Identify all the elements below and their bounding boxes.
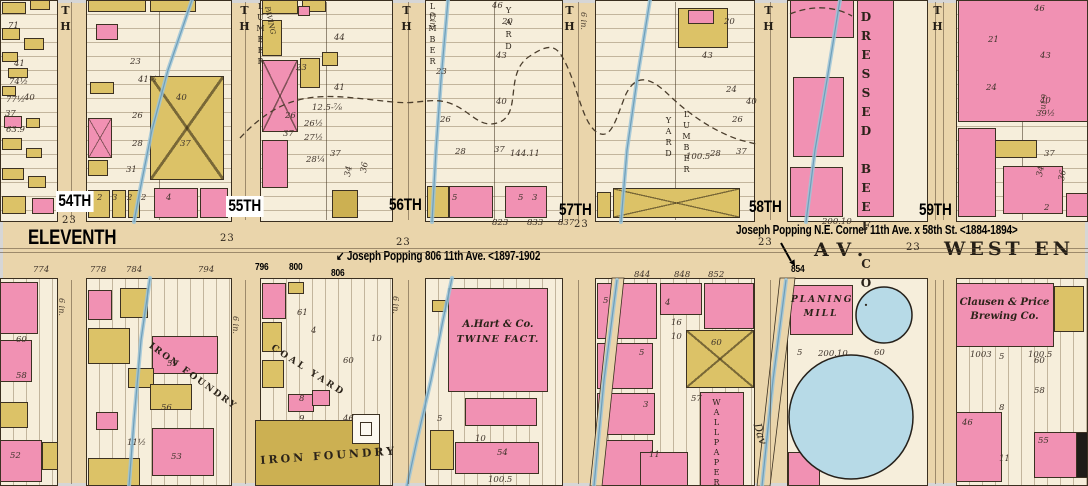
street-center-line <box>0 252 1088 253</box>
house-number-annotation: 854 <box>791 264 805 275</box>
building-footprint <box>298 6 310 16</box>
lot-number: 37 <box>5 110 16 119</box>
street-width-marker: 23 <box>62 216 77 226</box>
lot-number: 844 <box>634 271 650 280</box>
building-footprint <box>322 52 338 66</box>
lot-number: 71 <box>8 22 19 31</box>
stream-line <box>762 280 786 486</box>
street-name-top-fragment: TH <box>564 4 575 36</box>
lot-number: 58 <box>1034 387 1045 396</box>
lot-number: 37 <box>736 148 747 157</box>
building-footprint <box>1054 286 1084 332</box>
business-label: WALLPAPER <box>712 398 720 486</box>
lot-number: 36 <box>360 161 370 173</box>
building-footprint <box>88 0 146 12</box>
lot-number: 56 <box>161 404 172 413</box>
lot-number: 8 <box>299 395 304 404</box>
lot-number: 37 <box>494 146 505 155</box>
lot-number: 3 <box>112 194 117 203</box>
lot-number: 37 <box>1044 150 1055 159</box>
lot-number: 11 <box>999 455 1010 464</box>
building-footprint <box>42 442 58 470</box>
street-name-top-fragment: TH <box>763 4 774 36</box>
business-label: DRESSED BEEF CO. <box>860 10 872 314</box>
building-footprint <box>360 422 372 436</box>
building-footprint <box>96 412 118 430</box>
lot-number: 60 <box>16 336 27 345</box>
building-footprint <box>597 192 611 218</box>
lot-number: 848 <box>674 271 690 280</box>
lot-number: 54 <box>497 449 508 458</box>
business-label: PLANING <box>791 296 851 305</box>
lot-number: 40 <box>24 94 35 103</box>
building-footprint <box>688 10 714 24</box>
business-label: Clausen & Price <box>952 298 1057 308</box>
building-footprint <box>790 167 843 217</box>
building-footprint <box>2 196 26 214</box>
business-label: YARD <box>664 116 672 160</box>
street-label: 56TH <box>389 196 422 214</box>
lot-number: 61 <box>297 309 308 318</box>
building-footprint <box>1003 166 1063 214</box>
lot-number: 5 <box>639 349 644 358</box>
building-footprint <box>2 138 22 150</box>
lot-number: 26½ <box>304 120 323 129</box>
lot-number: 2 <box>97 194 102 203</box>
street-width-marker: 23 <box>220 234 235 244</box>
street-name-top-fragment: TH <box>239 4 250 36</box>
street-name-top-fragment: TH <box>932 4 943 36</box>
street-width-marker: 23 <box>574 220 589 230</box>
street-label: 58TH <box>749 198 782 216</box>
building-footprint <box>262 60 298 132</box>
lot-number: 37 <box>180 140 191 149</box>
lot-number: 46 <box>1034 5 1045 14</box>
street-label: 59TH <box>919 201 952 219</box>
building-footprint <box>88 118 112 158</box>
lot-number: 778 <box>90 266 106 275</box>
lot-number: 4 <box>166 194 171 203</box>
lot-number: 37 <box>330 150 341 159</box>
house-number-annotation: 806 <box>331 268 345 279</box>
street-center-line <box>770 280 771 484</box>
business-label: TWINE FACT. <box>450 335 546 345</box>
lot-number: 36 <box>1058 169 1068 181</box>
stream-center-line <box>762 280 786 486</box>
building-footprint <box>700 392 744 486</box>
street-center-line <box>71 280 72 484</box>
building-footprint <box>88 290 112 320</box>
building-footprint <box>24 38 44 50</box>
lot-number: 12.5-⅞ <box>312 104 342 113</box>
building-footprint <box>88 458 140 486</box>
business-label: Brewing Co. <box>952 312 1057 322</box>
water-main-label: 6 in. <box>579 12 588 30</box>
lot-number: 16 <box>671 319 682 328</box>
building-footprint <box>427 186 449 218</box>
lot-number: 2 <box>127 194 132 203</box>
lot-number: 31 <box>126 166 137 175</box>
building-footprint <box>1066 193 1088 217</box>
business-label: YARD <box>504 6 512 54</box>
lot-number: 10 <box>475 435 486 444</box>
building-footprint <box>32 198 54 214</box>
building-footprint <box>28 176 46 188</box>
building-footprint <box>262 360 284 388</box>
lot-number: 5 <box>797 349 802 358</box>
lot-number: 3 <box>532 194 537 203</box>
lot-number: 28 <box>132 140 143 149</box>
lot-number: 794 <box>198 266 214 275</box>
annotation-popping-58th: Joseph Popping N.E. Corner 11th Ave. x 5… <box>736 224 1018 237</box>
building-footprint <box>200 188 228 218</box>
building-footprint <box>793 77 844 157</box>
building-footprint <box>505 186 547 218</box>
lot-number: 60 <box>711 339 722 348</box>
building-footprint <box>88 328 130 364</box>
building-footprint <box>788 452 820 486</box>
building-footprint <box>288 282 304 294</box>
lot-number: 46 <box>962 419 973 428</box>
street-label: 55TH <box>226 196 263 217</box>
business-label: LUMBER <box>682 110 690 176</box>
lot-number: 40 <box>176 94 187 103</box>
street-center-line <box>943 280 944 484</box>
lot-number: 5 <box>437 415 442 424</box>
lot-number: 60 <box>1034 357 1045 366</box>
building-footprint <box>430 430 454 470</box>
lot-number: 1003 <box>970 351 992 360</box>
street-width-marker: 23 <box>396 238 411 248</box>
street-name-top-fragment: TH <box>401 4 412 36</box>
lot-number: 823 <box>492 219 508 228</box>
business-label: A.Hart & Co. <box>450 320 546 330</box>
lot-number: 43 <box>702 52 713 61</box>
lot-number: 23 <box>296 64 307 73</box>
street-center-line <box>578 2 579 220</box>
lot-number: 41½ <box>138 76 157 85</box>
lot-number: 55 <box>1038 437 1049 446</box>
lot-number: 144.11 <box>510 150 540 159</box>
lot-number: 26 <box>440 116 451 125</box>
building-footprint <box>262 283 286 319</box>
building-footprint <box>640 452 688 486</box>
lot-number: 60 <box>343 357 354 366</box>
lot-number: 9 <box>299 415 304 424</box>
building-footprint <box>26 148 42 158</box>
building-footprint <box>2 168 24 180</box>
building-footprint <box>704 283 754 329</box>
lot-number: 44 <box>334 34 345 43</box>
lot-number: 74½ <box>9 78 28 87</box>
lot-number: 3 <box>643 401 648 410</box>
water-main-label: 6 in. <box>391 296 400 314</box>
lot-number: 4 <box>311 327 316 336</box>
building-footprint <box>154 188 198 218</box>
lot-number: 784 <box>126 266 142 275</box>
lot-number: 2 <box>1044 204 1049 213</box>
street-width-marker: 23 <box>906 243 921 253</box>
business-label: MILL <box>791 310 851 319</box>
lot-number: 837 <box>558 219 574 228</box>
house-number-annotation: 800 <box>289 262 303 273</box>
lot-number: 26 <box>285 112 296 121</box>
lot-number: 4 <box>665 299 670 308</box>
lot-number: 200.10 <box>822 218 852 227</box>
lot-number: 46 <box>492 2 503 11</box>
building-footprint <box>455 442 539 474</box>
lot-number: 5 <box>452 194 457 203</box>
building-footprint <box>150 76 224 180</box>
building-footprint <box>120 288 148 318</box>
building-footprint <box>312 390 330 406</box>
street-center-line <box>0 248 1088 249</box>
building-footprint <box>90 82 114 94</box>
lot-number: 28 <box>455 148 466 157</box>
lot-number: 28¼ <box>306 156 325 165</box>
building-footprint <box>958 128 996 217</box>
lot-number: 27½ <box>304 134 323 143</box>
lot-number: 852 <box>708 271 724 280</box>
street-center-line <box>935 280 936 484</box>
lot-number: 58 <box>16 372 27 381</box>
lot-number: 774 <box>33 266 49 275</box>
lot-number: 23 <box>130 58 141 67</box>
lot-number: 20 <box>724 18 735 27</box>
building-footprint <box>96 24 118 40</box>
lot-number: 40 <box>746 98 757 107</box>
building-footprint <box>26 118 40 128</box>
lot-number: 28 <box>710 150 721 159</box>
building-footprint <box>597 343 653 389</box>
eleventh-avenue-label: ELEVENTH <box>28 227 116 249</box>
lot-number: 37 <box>283 130 294 139</box>
street-label: 57TH <box>559 201 592 219</box>
building-footprint <box>1076 432 1088 478</box>
building-footprint <box>152 428 214 476</box>
business-label: LUMBER <box>428 2 436 68</box>
house-number-annotation: 796 <box>255 262 269 273</box>
building-footprint <box>790 0 854 38</box>
lot-number: 52 <box>10 452 21 461</box>
lot-number: 46 <box>343 415 354 424</box>
street-width-marker: 23 <box>758 238 773 248</box>
lot-divider-line <box>494 2 495 220</box>
lot-number: 5 <box>603 297 608 306</box>
building-footprint <box>958 0 1088 122</box>
lot-number: 41 <box>334 84 345 93</box>
lot-number: 5 <box>999 353 1004 362</box>
lot-number: 2 <box>141 194 146 203</box>
lot-number: 34 <box>344 165 354 177</box>
lot-number: 57 <box>691 395 702 404</box>
building-footprint <box>262 140 288 188</box>
lot-number: 26 <box>732 116 743 125</box>
lot-number: 5 <box>518 194 523 203</box>
building-footprint <box>432 300 446 312</box>
lot-number: 8 <box>999 404 1004 413</box>
lot-number: 34 <box>1036 165 1046 177</box>
water-main-label: 6 in. <box>1039 94 1048 112</box>
atlas-map: ELEVENTH AV. WEST EN GAS HOLDER ↙ Joseph… <box>0 0 1088 486</box>
building-footprint <box>0 402 28 428</box>
building-footprint <box>613 188 740 218</box>
building-footprint <box>332 190 358 218</box>
lot-number: 23 <box>436 68 447 77</box>
building-footprint <box>0 440 42 482</box>
lot-number: 10 <box>671 333 682 342</box>
street-label: 54TH <box>56 191 93 212</box>
water-main-label: 6 in. <box>231 316 240 334</box>
lot-number: 24 <box>986 84 997 93</box>
lot-number: 26 <box>132 112 143 121</box>
lot-number: 63.9 <box>6 126 25 135</box>
lot-number: 10 <box>371 335 382 344</box>
lot-number: 11½ <box>127 439 146 448</box>
building-footprint <box>0 282 38 334</box>
building-footprint <box>2 2 26 14</box>
building-footprint <box>465 398 537 426</box>
lot-number: 40 <box>496 98 507 107</box>
lot-number: 100.5 <box>488 476 512 485</box>
building-footprint <box>597 283 657 339</box>
street-center-line <box>408 280 409 484</box>
street-center-line <box>245 280 246 484</box>
building-footprint <box>88 160 108 176</box>
map-screenshot-frame: ELEVENTH AV. WEST EN GAS HOLDER ↙ Joseph… <box>0 0 1088 486</box>
west-end-avenue-label: WEST EN <box>944 240 1074 259</box>
lot-number: 41 <box>14 60 25 69</box>
building-footprint <box>30 0 50 10</box>
lot-number: 77½ <box>6 96 25 105</box>
lot-number: 60 <box>874 349 885 358</box>
street-center-line <box>578 280 579 484</box>
business-label: LUMBER <box>256 2 264 68</box>
building-footprint <box>150 0 196 12</box>
building-footprint <box>995 140 1037 158</box>
lot-number: 53 <box>171 453 182 462</box>
lot-number: 833 <box>527 219 543 228</box>
lot-number: 24 <box>726 86 737 95</box>
lot-number: 11 <box>649 451 660 460</box>
lot-number: 200.10 <box>818 350 848 359</box>
lot-number: 21 <box>988 36 999 45</box>
street-name-top-fragment: TH <box>60 4 71 36</box>
lot-number: 43 <box>1040 52 1051 61</box>
water-main-label: 6 in. <box>57 298 66 316</box>
